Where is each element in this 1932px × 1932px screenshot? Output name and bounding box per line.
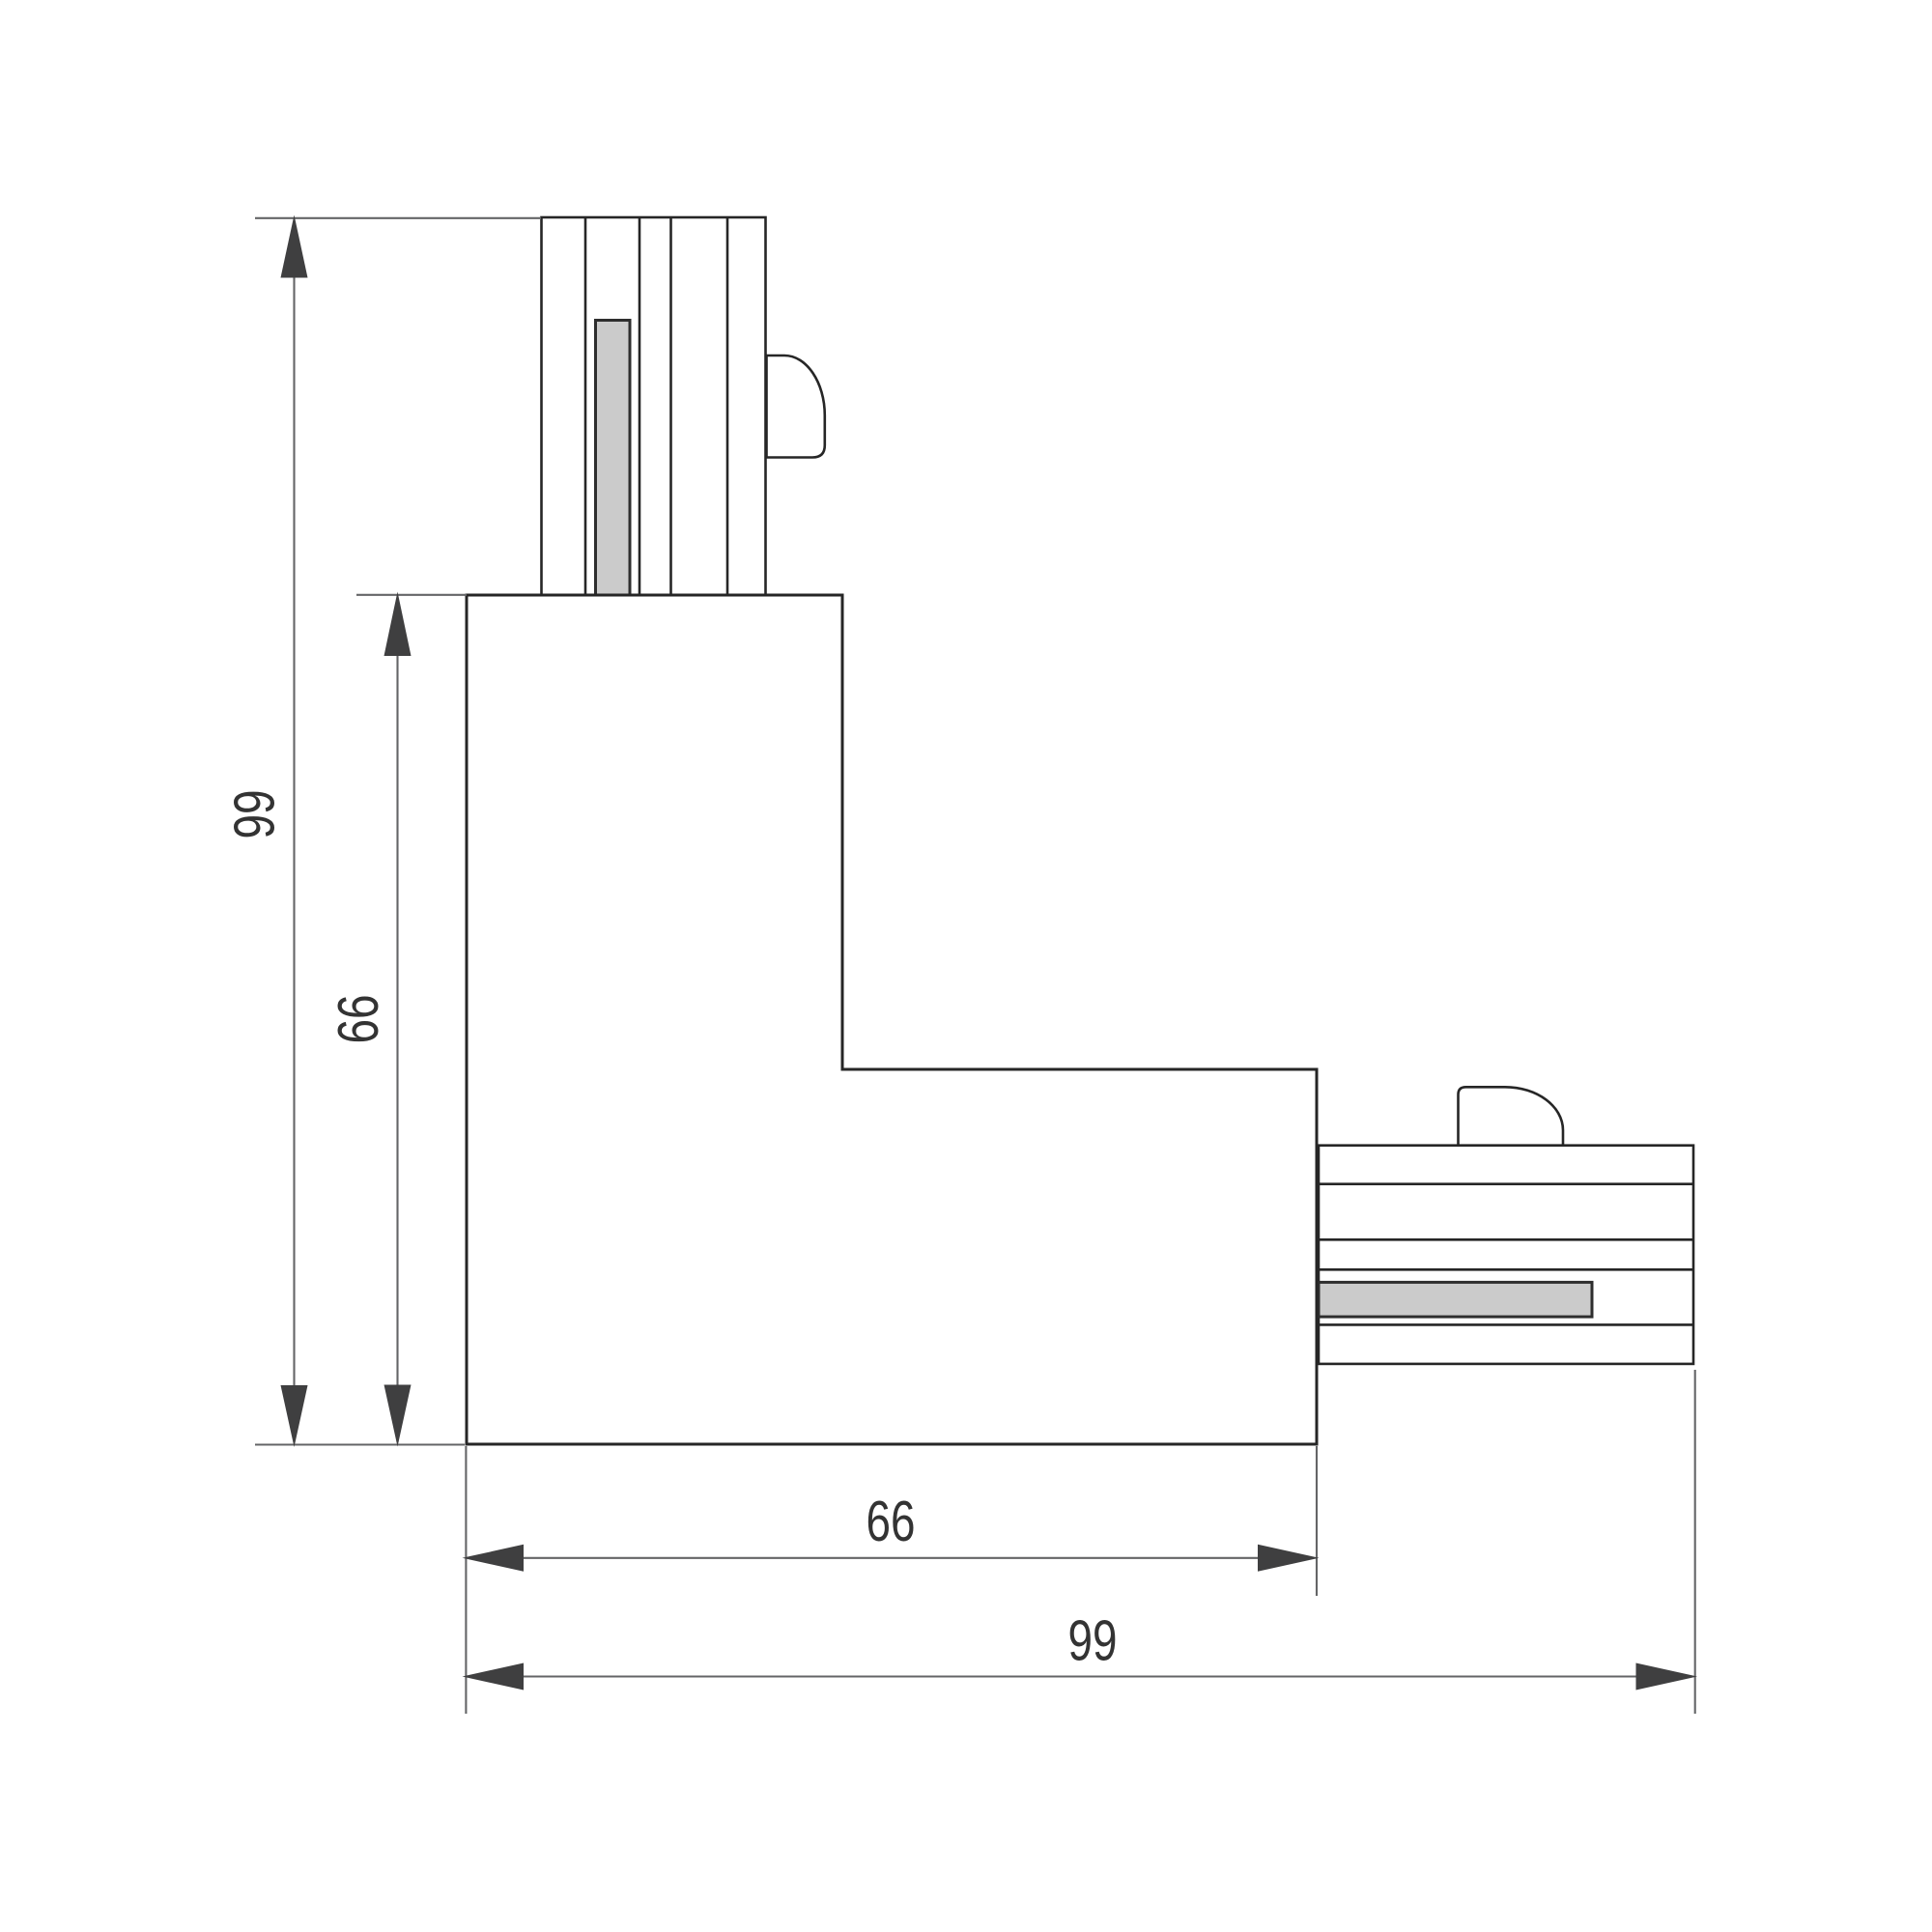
svg-text:99: 99: [223, 790, 287, 839]
svg-text:66: 66: [867, 1490, 916, 1553]
svg-text:99: 99: [1068, 1608, 1118, 1672]
svg-text:66: 66: [327, 995, 390, 1044]
